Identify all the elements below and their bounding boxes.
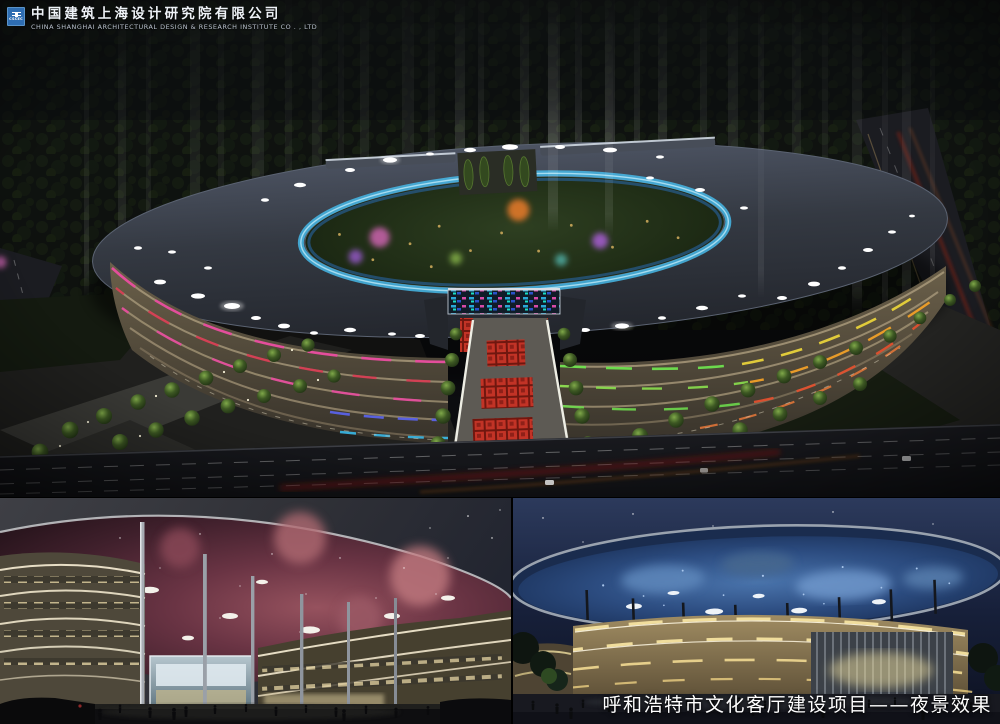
nebula-canopy-scene xyxy=(0,498,511,724)
aerial-night-scene xyxy=(0,0,1000,497)
vignette xyxy=(0,0,1000,497)
company-logo-icon: CSCEC xyxy=(7,7,25,26)
gold-band-building xyxy=(513,615,973,698)
left-building-stack xyxy=(0,552,145,713)
project-caption: 呼和浩特市文化客厅建设项目——夜景效果 xyxy=(602,690,992,717)
cscec-glyph-icon xyxy=(12,12,21,17)
company-header: CSCEC 中国建筑上海设计研究院有限公司 CHINA SHANGHAI ARC… xyxy=(7,7,317,31)
presentation-board: { "header": { "logo_text": "CSCEC", "com… xyxy=(0,0,1000,724)
ground-view-nebula-canopy xyxy=(0,498,511,724)
company-name-cn: 中国建筑上海设计研究院有限公司 xyxy=(31,7,317,21)
company-name-en: CHINA SHANGHAI ARCHITECTURAL DESIGN & RE… xyxy=(31,23,317,31)
center-lobby xyxy=(150,656,252,710)
main-aerial-rendering xyxy=(0,0,1000,497)
logo-text: CSCEC xyxy=(9,18,23,22)
